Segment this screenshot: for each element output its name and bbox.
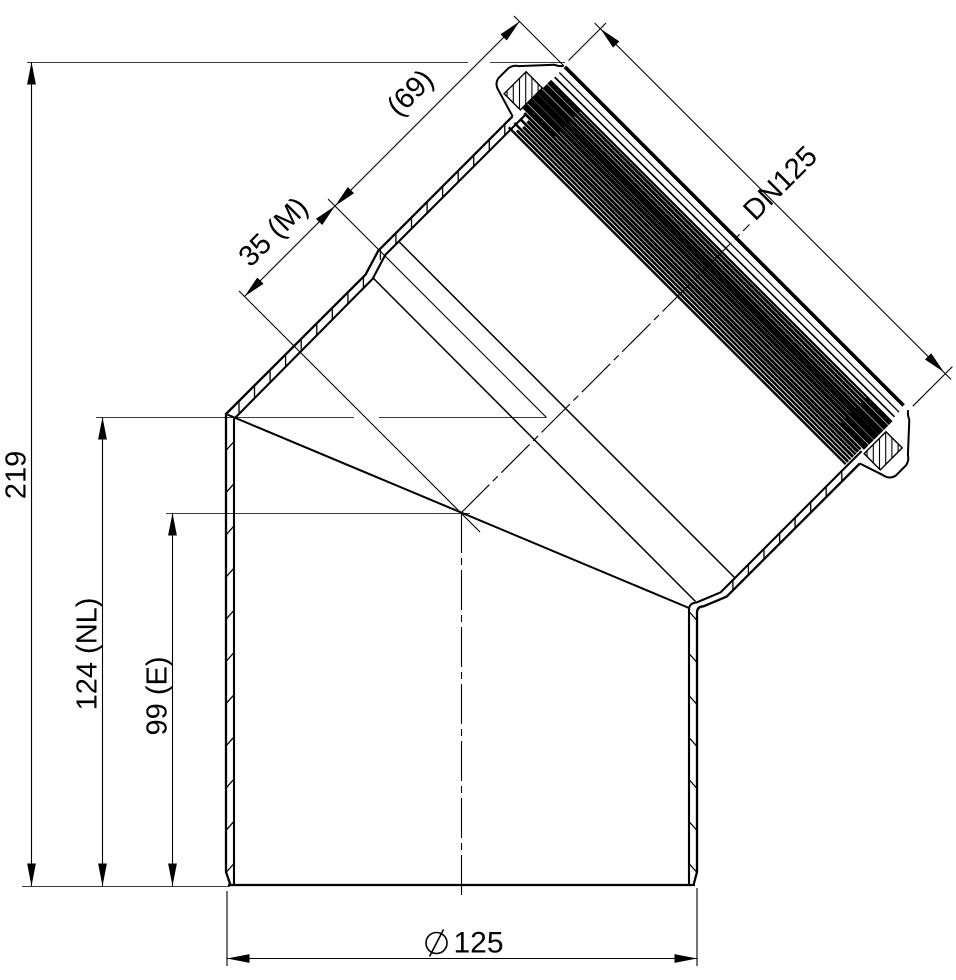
svg-text:124 (NL): 124 (NL) bbox=[72, 598, 104, 711]
svg-text:99 (E): 99 (E) bbox=[142, 657, 174, 736]
svg-text:125: 125 bbox=[454, 927, 504, 960]
svg-text:219: 219 bbox=[1, 451, 33, 499]
